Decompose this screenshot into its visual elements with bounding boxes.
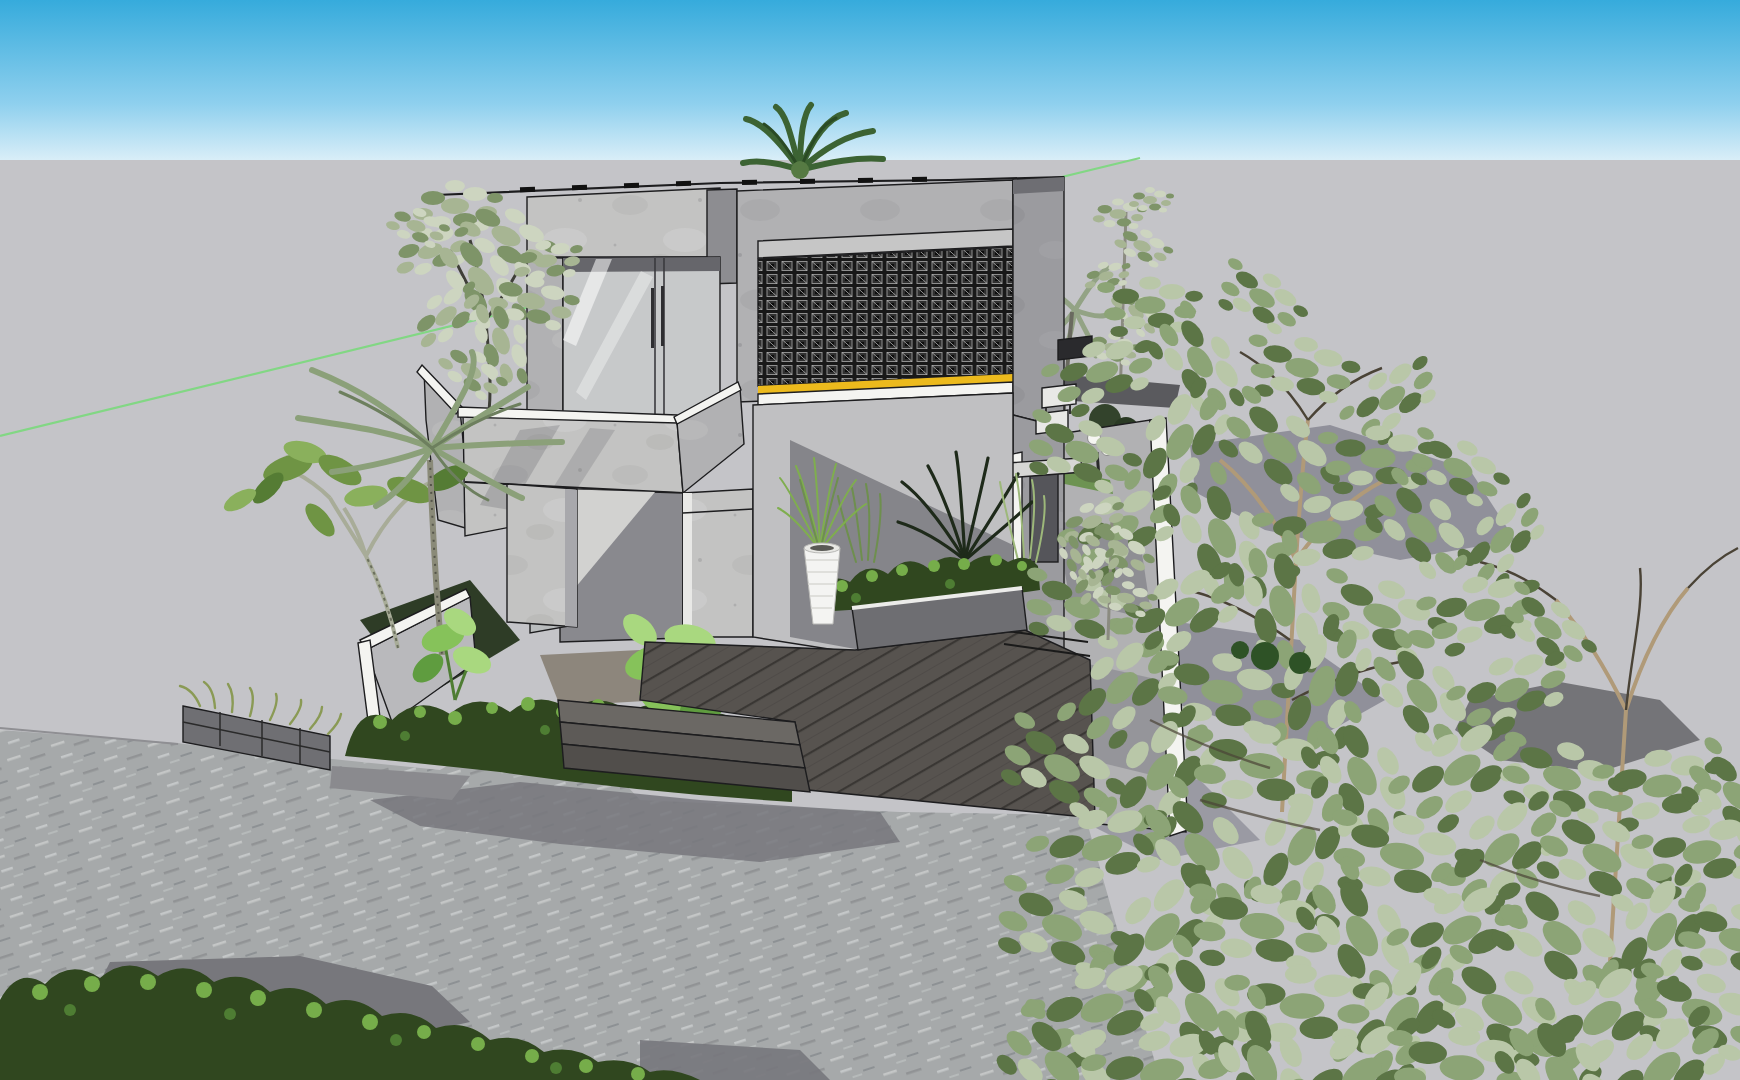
sky [0,0,1740,160]
render-canvas[interactable] [0,0,1740,1080]
breeze-block-screen[interactable] [758,247,1013,386]
glass-curtain-wall [563,257,720,419]
door-handle [651,288,654,348]
side-soffit [1013,177,1064,194]
door-handle [661,286,664,346]
model-viewport[interactable] [0,0,1740,1080]
